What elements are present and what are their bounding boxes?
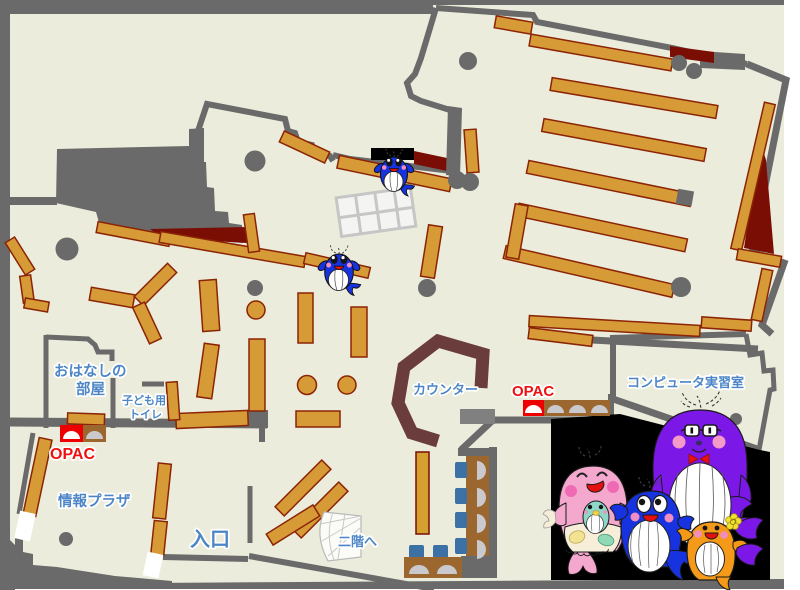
svg-text:子ども用: 子ども用 — [122, 394, 166, 407]
svg-text:トイレ: トイレ — [129, 408, 162, 421]
svg-text:カウンター: カウンター — [413, 382, 478, 397]
svg-text:入口: 入口 — [190, 528, 230, 551]
svg-text:OPAC: OPAC — [512, 383, 554, 400]
svg-text:OPAC: OPAC — [50, 446, 95, 463]
svg-text:部屋: 部屋 — [76, 380, 105, 398]
svg-text:二階へ: 二階へ — [338, 534, 377, 549]
svg-text:情報プラザ: 情報プラザ — [58, 492, 131, 510]
svg-text:コンピュータ実習室: コンピュータ実習室 — [627, 375, 744, 390]
svg-text:おはなしの: おはなしの — [54, 363, 127, 380]
